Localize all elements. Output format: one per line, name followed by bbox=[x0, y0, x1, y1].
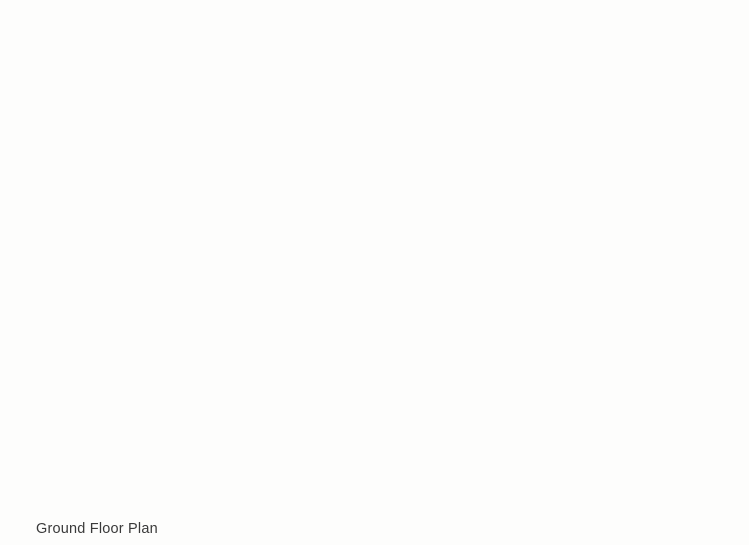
floor-plan-page: Ground Floor Plan bbox=[0, 0, 749, 545]
plan-title: Ground Floor Plan bbox=[36, 521, 158, 537]
plan-svg bbox=[0, 0, 749, 545]
